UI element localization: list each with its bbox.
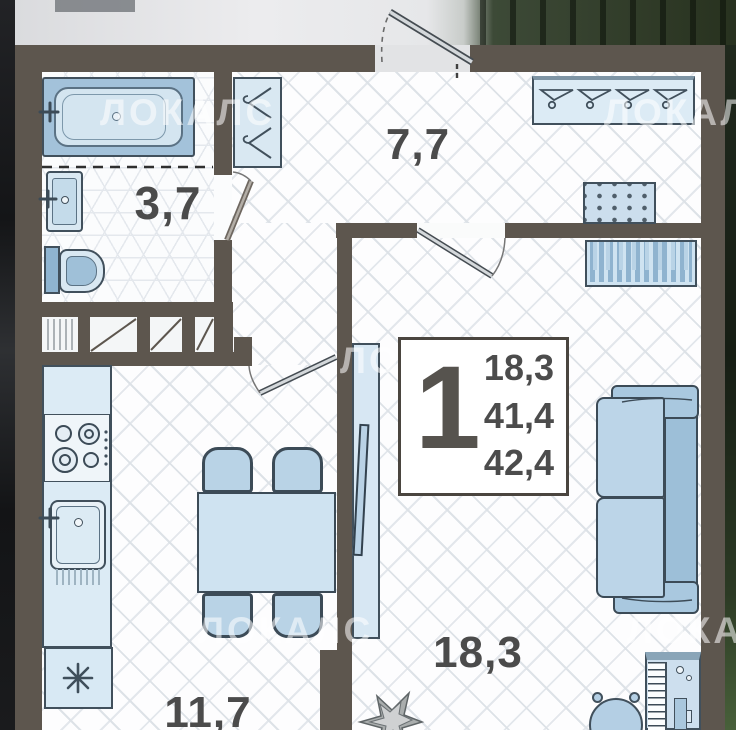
chair	[202, 447, 253, 493]
vent-separator-4	[214, 316, 233, 353]
shoe-cabinet	[583, 182, 656, 224]
rooms-count: 1	[401, 340, 483, 493]
area-without-balcony-value: 41,4	[483, 398, 554, 434]
watermark: ЛОКАЛС	[627, 610, 736, 652]
piano-keys	[648, 662, 667, 730]
vent-separator-3	[182, 316, 195, 353]
photo-building-left	[0, 0, 15, 730]
wardrobe-clothes-short	[593, 242, 689, 270]
piano-slot-handle	[686, 710, 692, 723]
piano-dot-2	[686, 675, 692, 681]
kitchen-drainboard	[56, 569, 101, 585]
vent-separator-2	[137, 316, 150, 353]
watermark: ЛОКАЛС	[198, 610, 373, 652]
photo-doorway-gap	[375, 45, 470, 72]
toilet-tank	[44, 246, 60, 294]
stove-burner-1	[55, 425, 72, 442]
kitchen-sink-drain	[74, 518, 83, 527]
piano-dot-1	[676, 666, 684, 674]
stove	[44, 414, 110, 482]
living-area-value: 18,3	[483, 350, 554, 386]
watermark: ЛОКАЛС	[604, 92, 736, 134]
unit-info-box: 1 18,3 41,4 42,4	[398, 337, 569, 496]
kitchen-sink-inner	[56, 506, 100, 564]
chair	[272, 447, 323, 493]
stove-burner-2-inner	[84, 429, 94, 439]
sofa-cushion-2	[596, 497, 665, 598]
sofa-cushion-1	[596, 397, 665, 498]
wall-living-left	[337, 238, 352, 652]
photo-foliage-bars	[480, 0, 736, 45]
hallway-area-label: 7,7	[358, 120, 478, 170]
wall-vent-bottom	[15, 352, 237, 366]
floor-plan: 3,7 7,7 11,7 18,3 ЛОКАЛС ЛОКАЛС ЛОКАЛС Л…	[0, 0, 736, 730]
washbasin-drain	[61, 196, 69, 204]
watermark: ЛОКАЛС	[100, 92, 275, 134]
stove-burner-3-inner	[59, 454, 71, 466]
wall-top-left	[15, 45, 375, 72]
wall-left	[15, 45, 42, 730]
wall-bathroom-right-lower	[214, 240, 232, 302]
living-door-gap-floor	[417, 223, 505, 238]
wall-living-left-thick	[320, 650, 352, 730]
wall-top-right	[470, 45, 725, 72]
living-room-area-label: 18,3	[408, 628, 548, 678]
fridge-snowflake-icon	[62, 662, 94, 694]
stove-burner-4	[83, 452, 99, 468]
total-area-value: 42,4	[483, 445, 554, 481]
toilet-bowl-inner	[66, 256, 97, 286]
wardrobe	[585, 240, 697, 287]
sofa-backrest	[664, 398, 698, 598]
vent-separator-1	[78, 316, 90, 353]
wall-hall-bottom-left	[336, 223, 417, 238]
wall-hall-bottom-right	[505, 223, 705, 238]
photo-facade-streak	[55, 0, 135, 12]
bathroom-area-label: 3,7	[108, 176, 228, 230]
wall-bathroom-bottom	[15, 302, 233, 317]
dining-table	[197, 492, 336, 593]
kitchen-area-label: 11,7	[138, 688, 278, 730]
wall-kitchen-door-jamb	[234, 337, 252, 366]
